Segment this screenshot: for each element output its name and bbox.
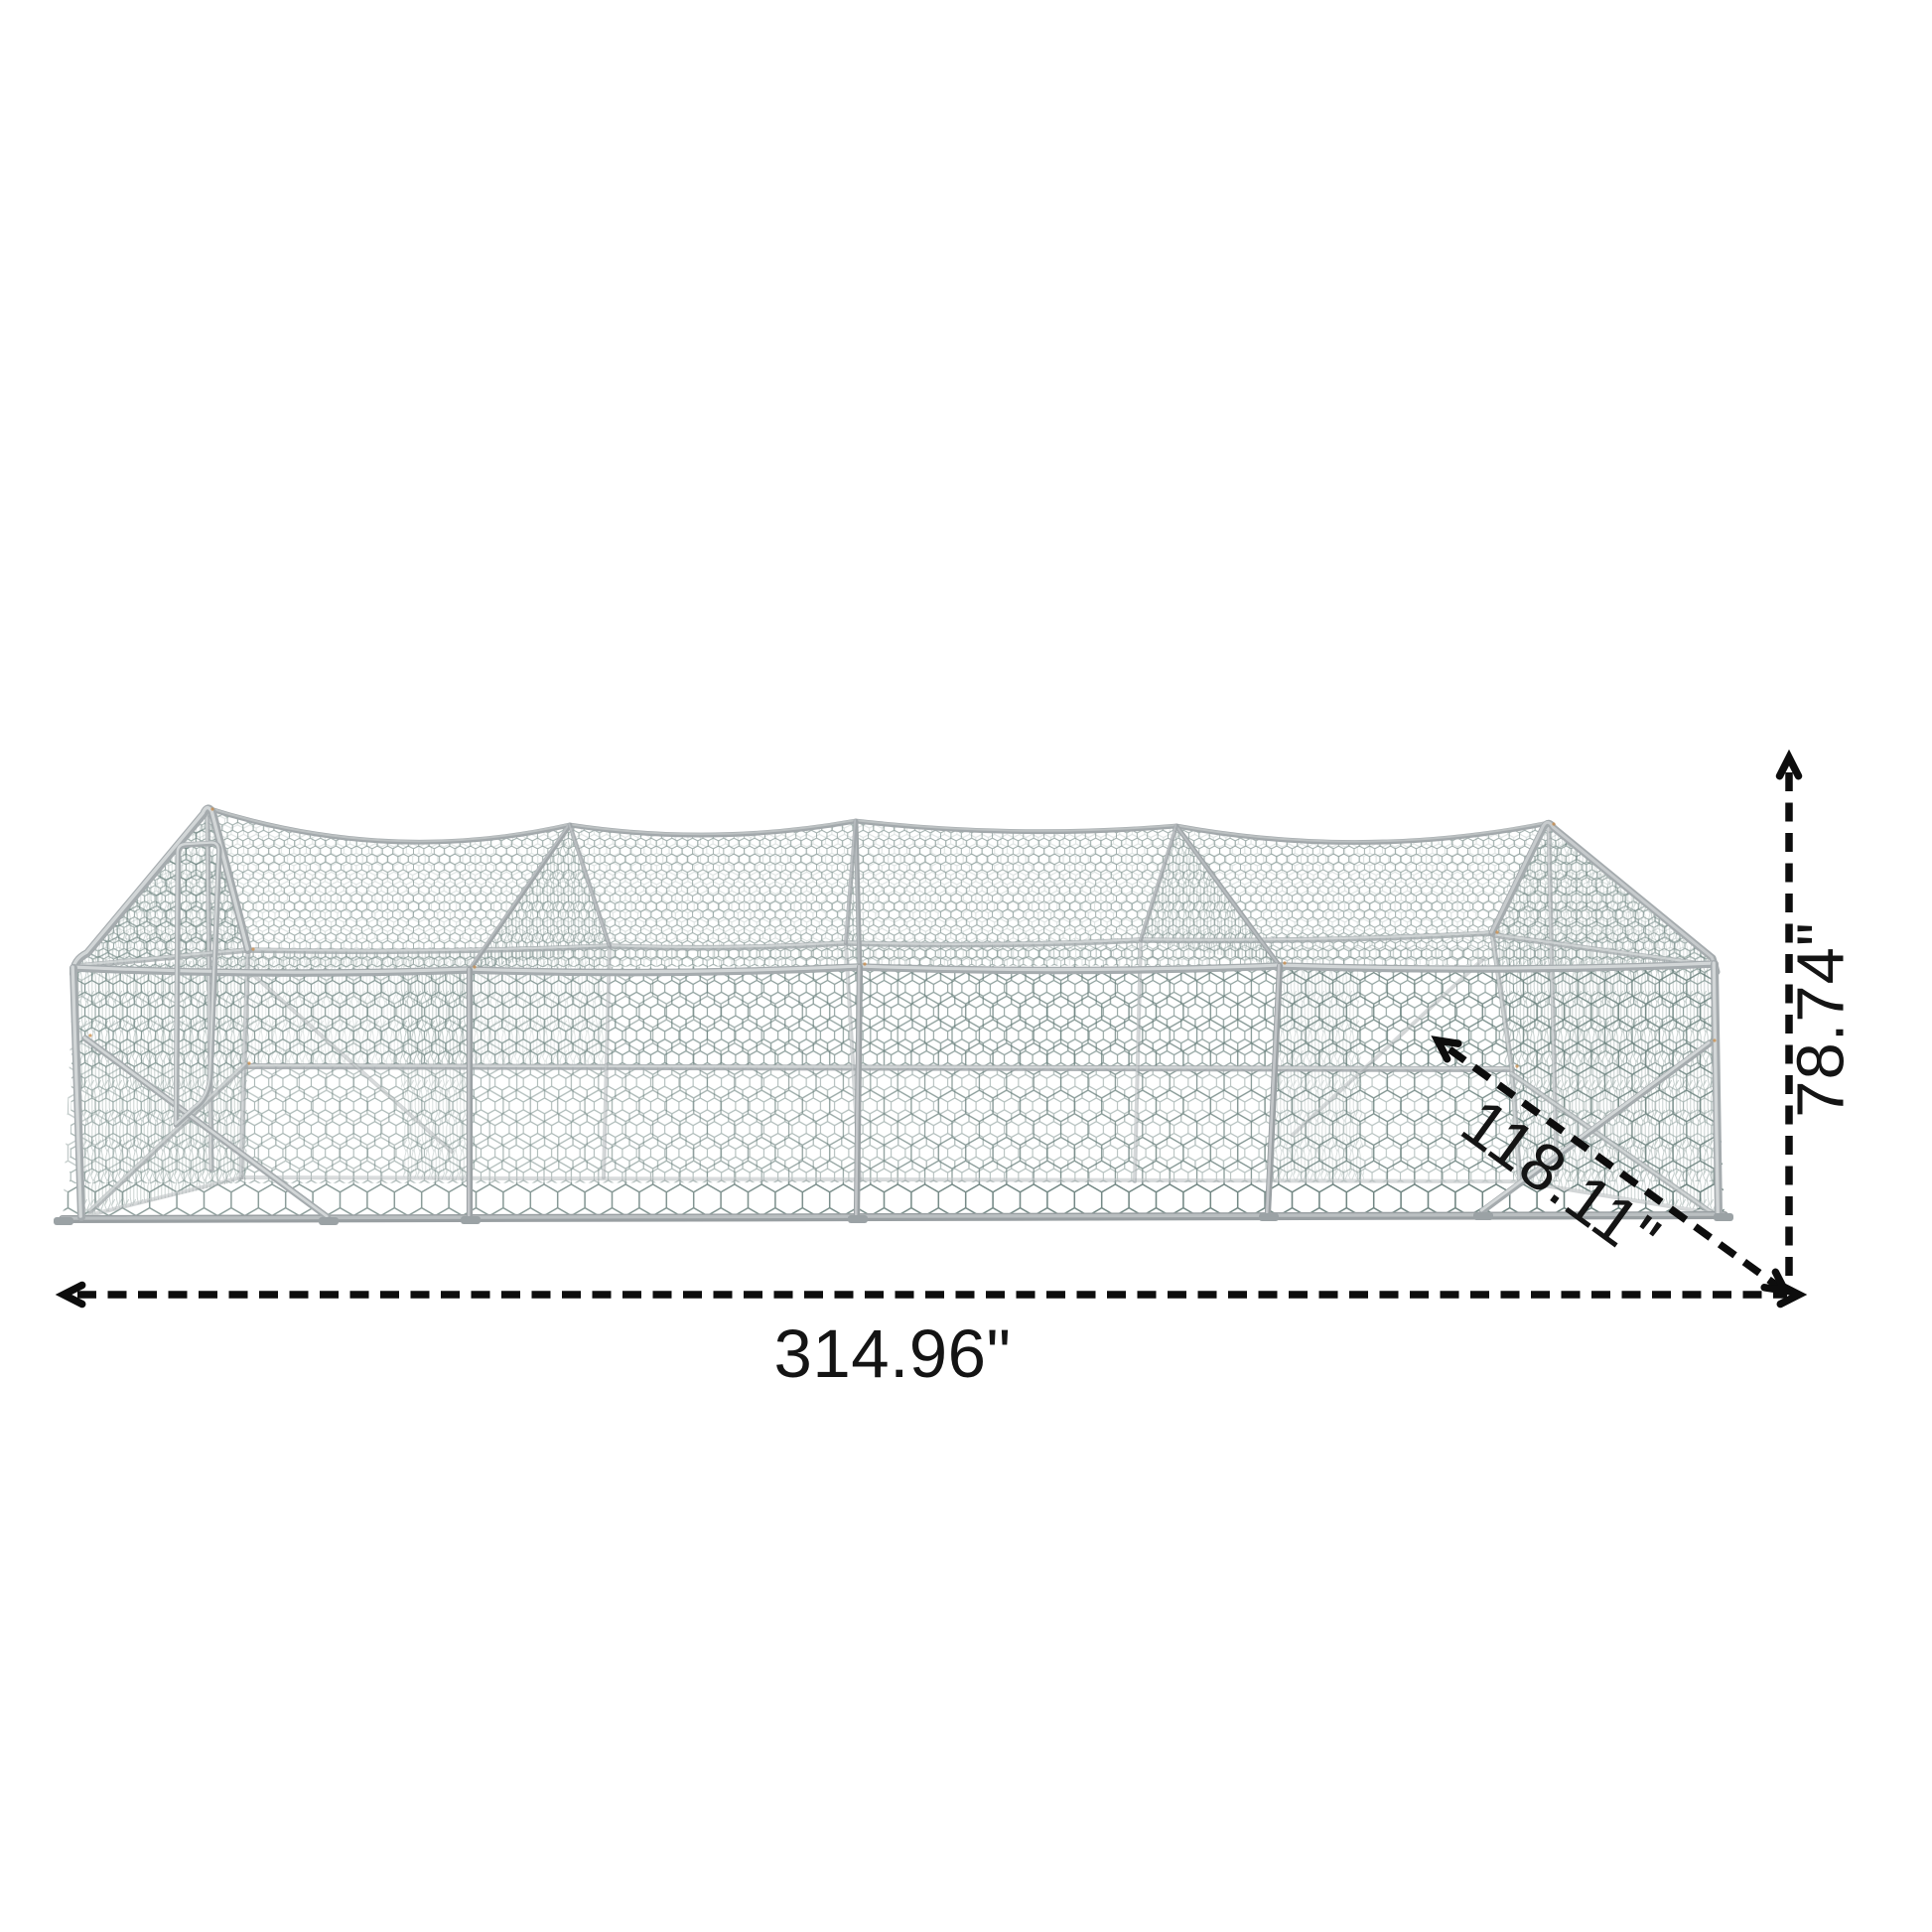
svg-text:78.74": 78.74" [1784, 921, 1859, 1117]
svg-text:314.96": 314.96" [773, 1315, 1011, 1392]
